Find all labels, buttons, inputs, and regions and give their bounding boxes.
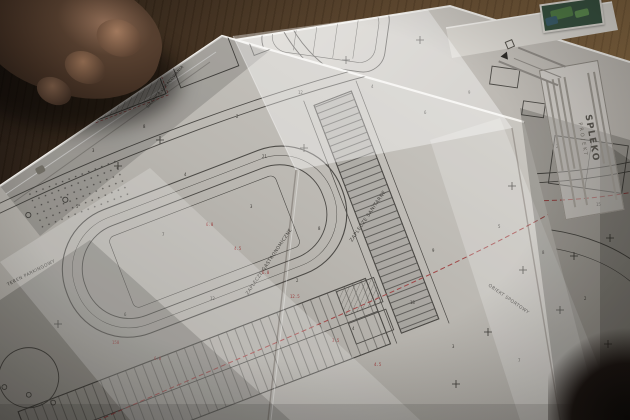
- plan-number: 18: [410, 300, 415, 305]
- red-dimension: 12.5: [290, 294, 300, 299]
- diamond-survey-marker-icon: [505, 39, 515, 49]
- dark-object-corner: [548, 325, 630, 420]
- triangle-benchmark-icon: [501, 50, 511, 59]
- plan-number: 21: [262, 154, 267, 159]
- aerial-field-light: [574, 8, 589, 18]
- hand: [0, 0, 190, 150]
- aerial-water: [545, 16, 559, 27]
- red-dimension: 4.5: [374, 362, 382, 367]
- photo-of-site-plans: ZAPLECZE SANITARNE ZAPLECZE GASTRONOMICZ…: [0, 0, 630, 420]
